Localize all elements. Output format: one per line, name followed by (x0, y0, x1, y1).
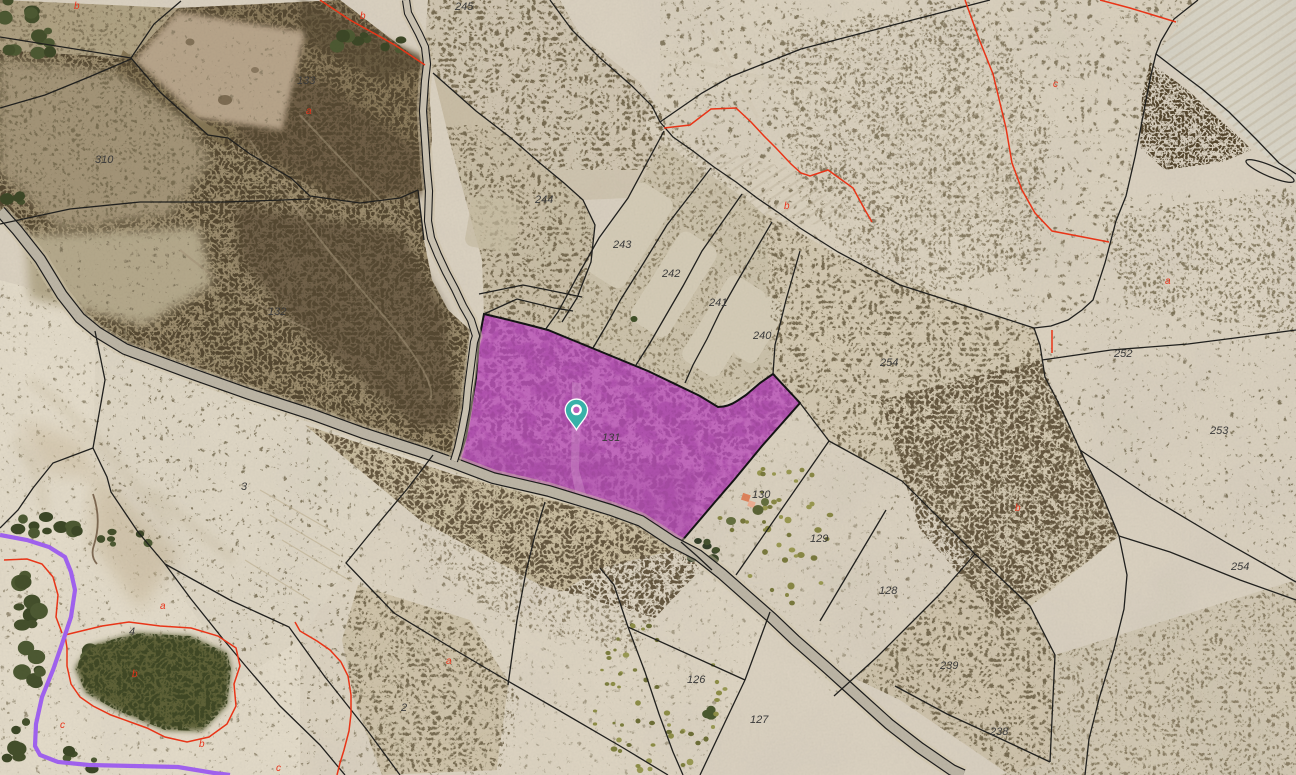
svg-text:c: c (60, 720, 65, 731)
svg-text:252: 252 (1113, 348, 1132, 360)
svg-text:c: c (1053, 79, 1058, 90)
svg-text:241: 241 (708, 297, 727, 309)
svg-text:254: 254 (879, 357, 898, 369)
svg-text:243: 243 (612, 239, 632, 251)
svg-text:254: 254 (1230, 561, 1249, 573)
svg-text:132: 132 (268, 306, 286, 318)
svg-text:b: b (199, 739, 205, 750)
svg-text:2: 2 (400, 702, 407, 714)
svg-text:133: 133 (297, 75, 316, 87)
svg-text:239: 239 (939, 660, 958, 672)
svg-text:a: a (1165, 276, 1171, 287)
svg-text:245: 245 (454, 1, 474, 13)
svg-text:310: 310 (95, 154, 114, 166)
svg-text:a: a (160, 601, 166, 612)
svg-text:128: 128 (879, 585, 898, 597)
svg-text:3: 3 (241, 481, 248, 493)
svg-text:b: b (132, 669, 138, 680)
svg-text:253: 253 (1209, 425, 1229, 437)
svg-text:238: 238 (989, 726, 1009, 738)
svg-text:244: 244 (534, 194, 553, 206)
svg-text:a: a (446, 656, 452, 667)
svg-text:131: 131 (602, 432, 620, 444)
svg-text:b: b (74, 1, 80, 12)
svg-text:a: a (306, 106, 312, 117)
svg-text:127: 127 (750, 714, 769, 726)
svg-text:b: b (1015, 503, 1021, 514)
svg-text:b: b (784, 201, 790, 212)
svg-text:4: 4 (129, 626, 135, 638)
svg-text:129: 129 (810, 533, 828, 545)
svg-text:240: 240 (752, 330, 772, 342)
svg-text:242: 242 (661, 268, 680, 280)
svg-text:130: 130 (752, 489, 771, 501)
svg-text:b: b (360, 11, 366, 22)
svg-text:126: 126 (687, 674, 706, 686)
svg-text:c: c (276, 763, 281, 774)
